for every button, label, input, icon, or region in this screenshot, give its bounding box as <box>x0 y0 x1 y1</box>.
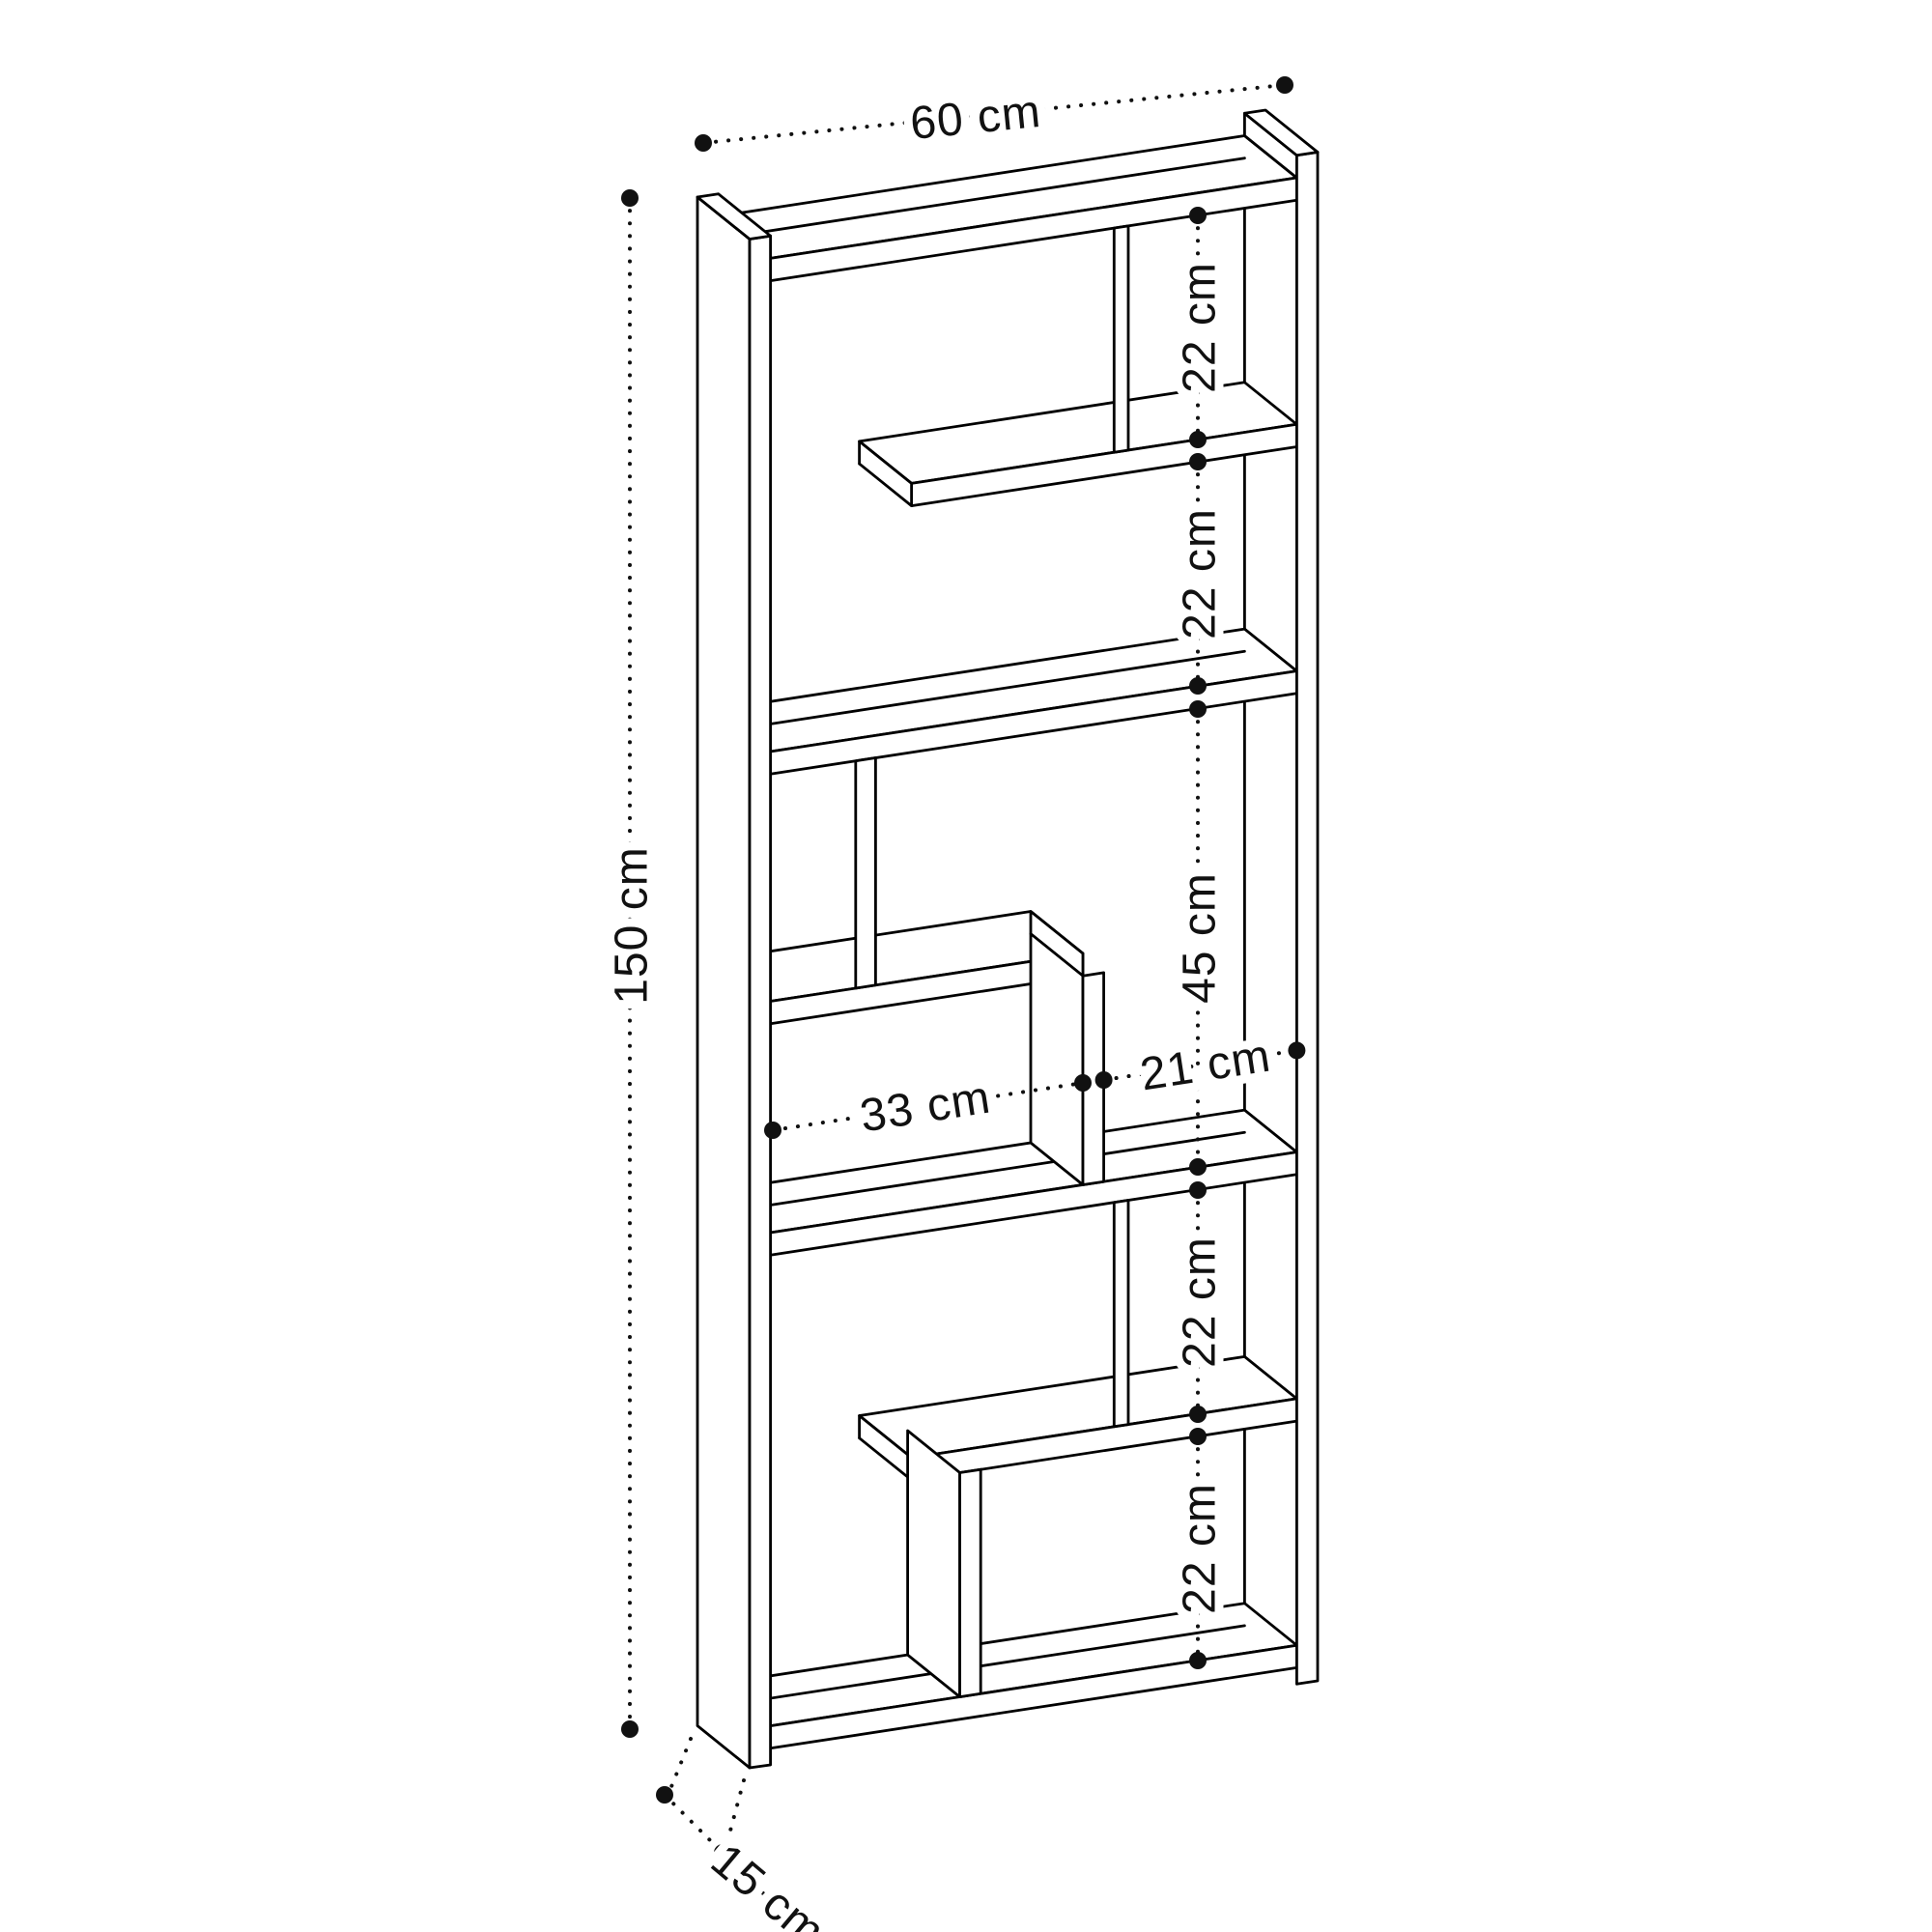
depth-dimension: 15 cm <box>656 1739 835 1932</box>
height-dimension-dot-top <box>621 189 639 207</box>
depth-dimension-label: 15 cm <box>701 1834 835 1932</box>
bookcase-dimension-diagram: 60 cm 150 cm 15 cm <box>0 0 1932 1932</box>
diagram-page: 60 cm 150 cm 15 cm <box>0 0 1932 1932</box>
divider-upper-middle <box>856 758 876 989</box>
offset-shelf-top <box>860 383 1297 506</box>
height-dimension-dot-bottom <box>621 1720 639 1738</box>
depth-dimension-dot-back <box>656 1786 673 1804</box>
left-panel-front-face <box>750 236 771 1768</box>
width-dimension-dot-left <box>695 134 712 152</box>
section-dot-1 <box>1189 207 1207 224</box>
section-height-label-3: 45 cm <box>1175 872 1226 1004</box>
offset-shelf-middle <box>719 912 1083 1024</box>
divider-lower-middle-front-face <box>1114 1201 1128 1427</box>
divider-bottom-side-face <box>908 1431 960 1697</box>
compartment-dot-1 <box>764 1122 781 1139</box>
divider-upper-middle-front-face <box>856 758 876 989</box>
height-dimension-label: 150 cm <box>607 846 658 1004</box>
divider-top-front-face <box>1114 226 1128 452</box>
height-dimension: 150 cm <box>607 189 658 1738</box>
section-height-label-2: 22 cm <box>1175 508 1226 639</box>
divider-bottom-front-face <box>960 1469 981 1696</box>
section-dot-9 <box>1189 1428 1207 1445</box>
lower-middle-shelf <box>719 1110 1297 1255</box>
right-side-panel <box>1244 110 1318 1684</box>
left-side-panel <box>697 194 771 1768</box>
section-dot-3 <box>1189 453 1207 470</box>
width-dimension: 60 cm <box>695 76 1293 152</box>
width-dimension-label: 60 cm <box>908 86 1043 150</box>
divider-middle <box>1031 934 1104 1185</box>
compartment-width-label-right: 21 cm <box>1137 1031 1274 1101</box>
top-shelf <box>719 136 1297 281</box>
right-panel-front-face <box>1296 153 1318 1685</box>
compartment-dot-2 <box>1074 1074 1092 1092</box>
section-dot-5 <box>1189 700 1207 718</box>
compartment-width-label-left: 33 cm <box>857 1072 994 1143</box>
section-dot-6 <box>1189 1158 1207 1176</box>
section-dot-4 <box>1189 677 1207 695</box>
section-dot-2 <box>1189 431 1207 448</box>
divider-top <box>1114 226 1128 452</box>
depth-extension-line-back <box>670 1739 691 1789</box>
bottom-shelf <box>719 1604 1297 1748</box>
section-height-label-5: 22 cm <box>1175 1483 1226 1614</box>
divider-bottom <box>908 1431 981 1697</box>
compartment-dot-4 <box>1288 1041 1305 1059</box>
width-dimension-dot-right <box>1276 76 1293 94</box>
upper-middle-shelf <box>719 629 1297 774</box>
divider-middle-side-face <box>1031 934 1083 1185</box>
section-dot-10 <box>1189 1652 1207 1669</box>
section-height-label-4: 22 cm <box>1175 1236 1226 1368</box>
compartment-dot-3 <box>1095 1071 1113 1089</box>
left-panel-outer-face <box>697 197 750 1768</box>
section-dot-7 <box>1189 1181 1207 1199</box>
section-dot-8 <box>1189 1406 1207 1423</box>
divider-lower-middle <box>1114 1201 1128 1427</box>
section-height-label-1: 22 cm <box>1175 262 1226 393</box>
